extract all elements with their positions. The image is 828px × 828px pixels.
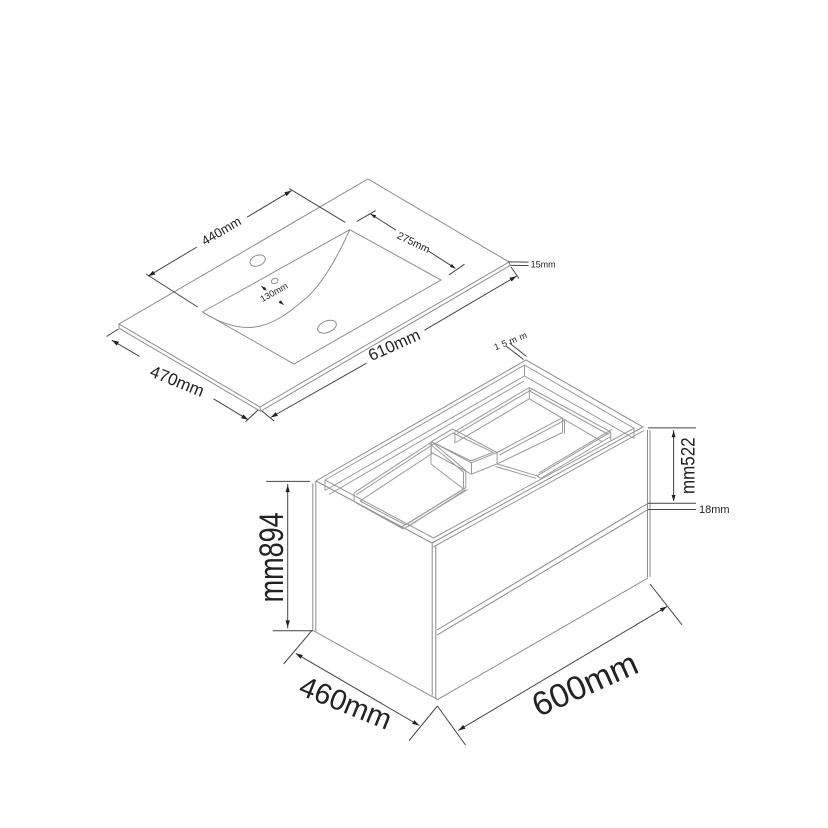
svg-text:18mm: 18mm: [699, 504, 730, 516]
svg-text:mm522: mm522: [678, 437, 699, 494]
svg-text:mm894: mm894: [252, 512, 291, 602]
svg-text:15mm: 15mm: [531, 260, 556, 270]
